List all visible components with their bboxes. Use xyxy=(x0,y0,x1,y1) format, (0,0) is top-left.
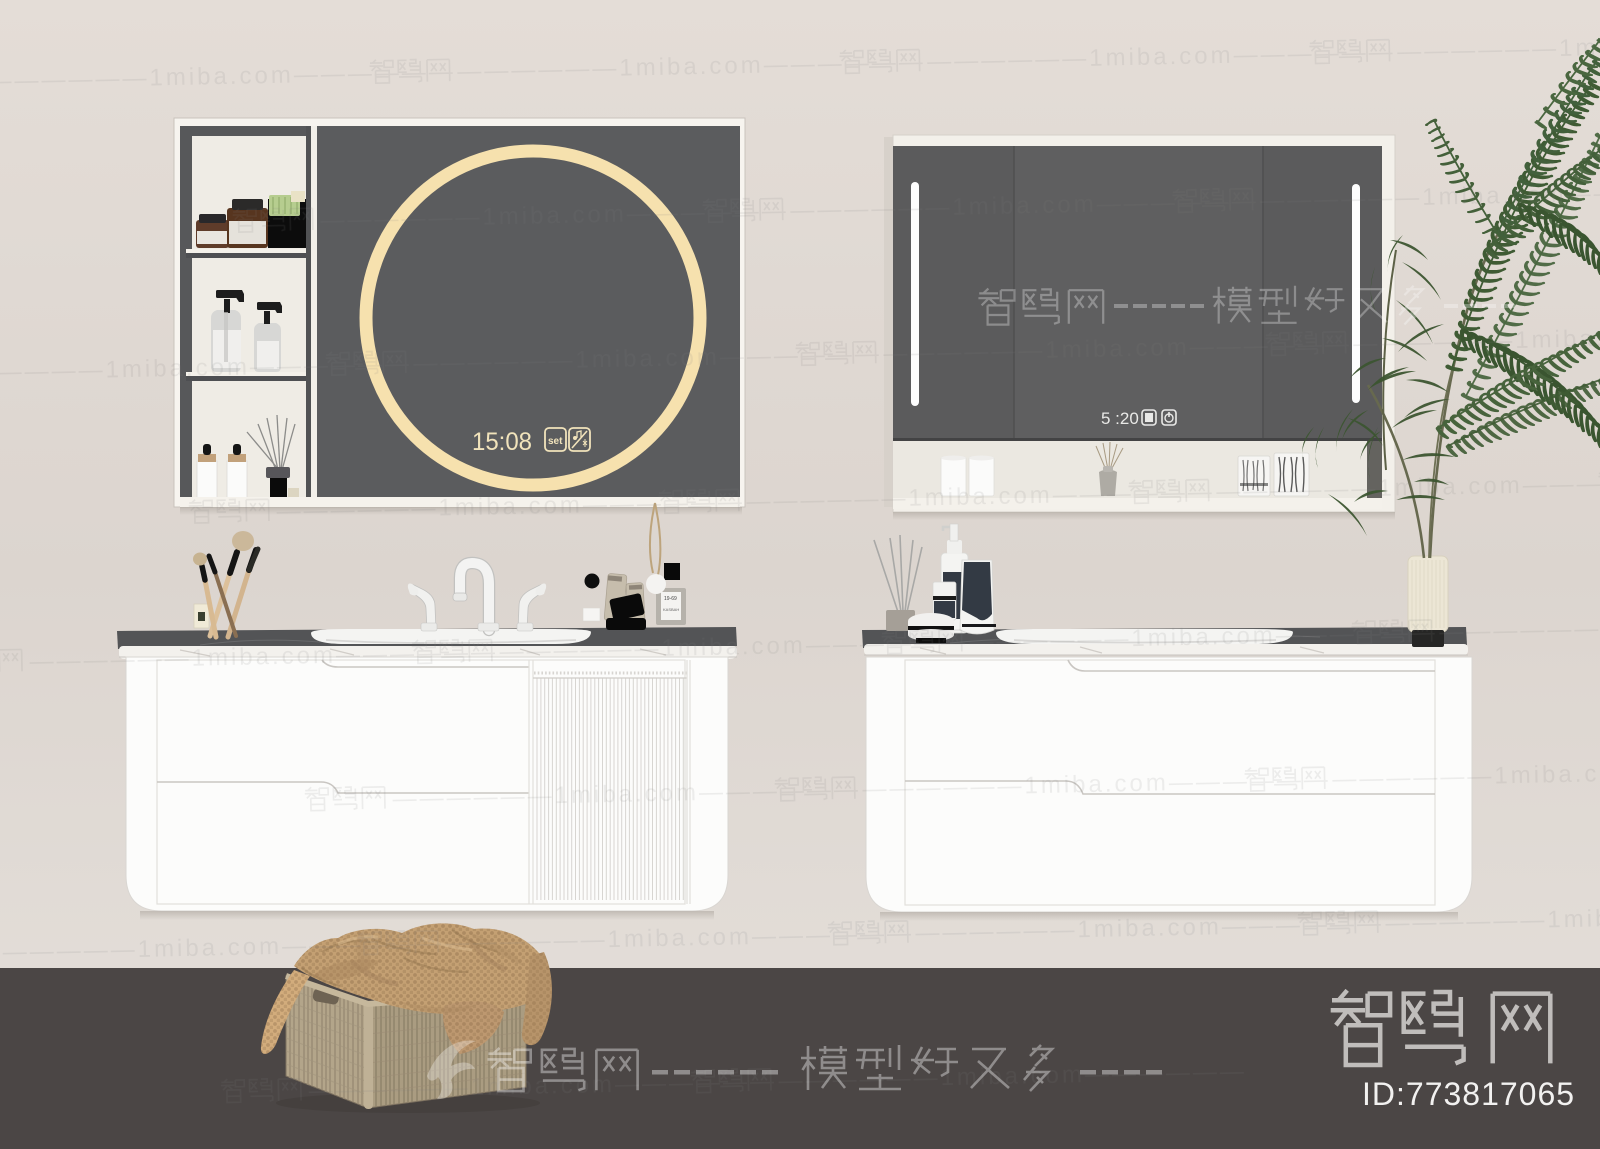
svg-text:15:08: 15:08 xyxy=(472,428,532,456)
svg-text:set: set xyxy=(548,436,563,447)
svg-text:ID:773817065: ID:773817065 xyxy=(1362,1076,1575,1112)
svg-text:19-69: 19-69 xyxy=(664,596,677,602)
svg-text:KASBAH: KASBAH xyxy=(663,607,679,612)
svg-text:5 :20: 5 :20 xyxy=(1101,409,1139,428)
